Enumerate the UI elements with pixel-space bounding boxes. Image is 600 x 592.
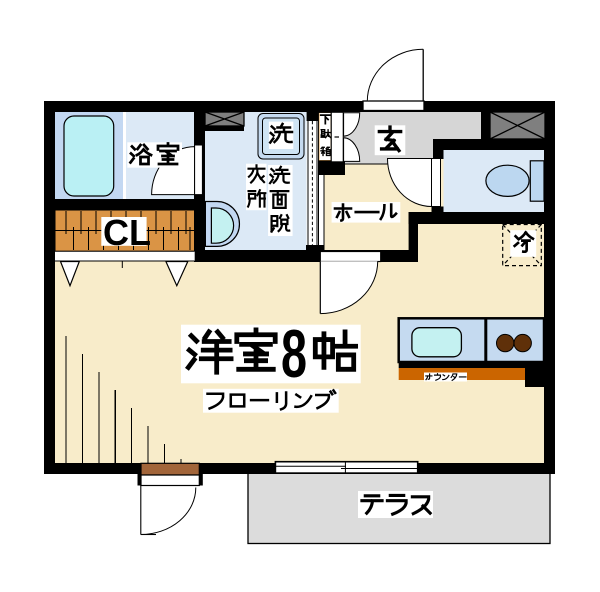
svg-text:CL: CL xyxy=(103,212,151,253)
svg-text:8: 8 xyxy=(281,316,307,392)
